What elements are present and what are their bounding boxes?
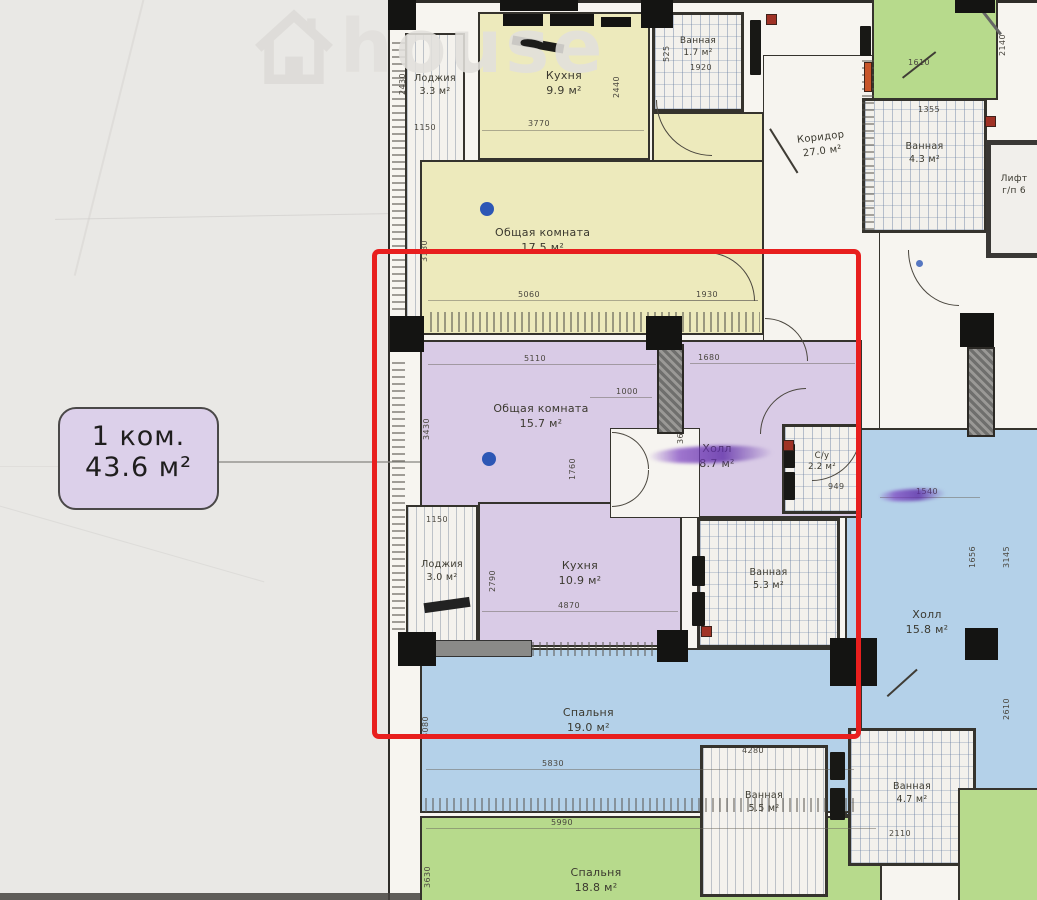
apartment-tag: 1 ком. 43.6 м² [58,407,219,510]
dim-label: 2110 [889,829,911,838]
room-label: Ванная [905,141,943,152]
fixture [830,788,845,820]
room-bath-47: Ванная4.7 м² [848,728,976,866]
vent-mark [985,116,996,127]
room-label: Кухня [546,69,582,82]
pen-dot [916,260,923,267]
window-mark [601,17,631,27]
leader-line [0,466,62,467]
room-area: 4.3 м² [865,154,984,167]
dim-label: 525 [662,46,671,62]
room-area: 18.8 м² [504,881,687,896]
fixture [830,752,845,780]
dim-label: 2440 [612,76,621,98]
apartment-area: 43.6 м² [60,452,217,483]
paper-crease [0,499,264,583]
room-label: Ванная [680,36,716,46]
room-area: 3.3 м² [407,86,463,99]
dim-label: 2430 [398,73,407,95]
window-mark [503,14,543,26]
room-bath-43: Ванная4.3 м² [862,98,987,233]
dim-label: 2140 [998,34,1007,56]
house-icon [248,3,340,91]
column [641,0,673,28]
window-mark [550,14,594,26]
floorplan-screenshot: { "watermark": { "text": "house", "icon"… [0,0,1037,900]
room-green-corner [958,788,1037,900]
dim-line [482,130,644,131]
dim-label: 5830 [542,759,564,768]
dim-label: 1920 [690,63,712,72]
column [960,313,994,347]
window-band [425,798,855,812]
column [388,0,416,30]
dim-label: 3145 [1002,546,1011,568]
column [965,628,998,660]
vent-shaft [967,347,995,437]
room-label: Лоджия [414,73,456,84]
dim-line [426,769,854,770]
room-label: Холл [912,608,942,621]
reference-dot [480,202,494,216]
room-label: Спальня [571,866,622,879]
vent-mark [766,14,777,25]
photo-edge [0,893,430,900]
room-area: 15.8 м² [877,623,977,638]
dim-label: 1150 [414,123,436,132]
dim-label: 3630 [423,866,432,888]
dim-line [426,828,876,829]
room-area: 4.7 м² [851,794,973,807]
room-label: Общая комната [495,226,590,239]
room-elevator: Лифтг/п 6 [986,140,1037,258]
room-area: 9.9 м² [480,84,648,99]
highlight-rectangle [372,249,861,739]
room-label: Лифт [1001,174,1028,184]
wall-segment [500,0,578,11]
dim-label: 2610 [1002,698,1011,720]
radiator-mark [864,62,872,92]
paper-crease [55,213,388,220]
room-label: Ванная [893,781,931,792]
dim-label: 4280 [742,746,764,755]
fixture [750,20,761,75]
room-kitchen-top: Кухня9.9 м² [478,12,650,160]
paper-crease [74,0,148,276]
room-bath-55: Ванная5.5 м² [700,745,828,897]
room-green-top [872,0,998,100]
room-area: г/п 6 [991,185,1037,197]
dim-label: 1355 [918,105,940,114]
dim-label: 1656 [968,546,977,568]
dim-label: 5990 [551,818,573,827]
column [955,0,995,13]
dim-label: 3770 [528,119,550,128]
apartment-type: 1 ком. [60,421,217,452]
fixture [860,26,871,56]
